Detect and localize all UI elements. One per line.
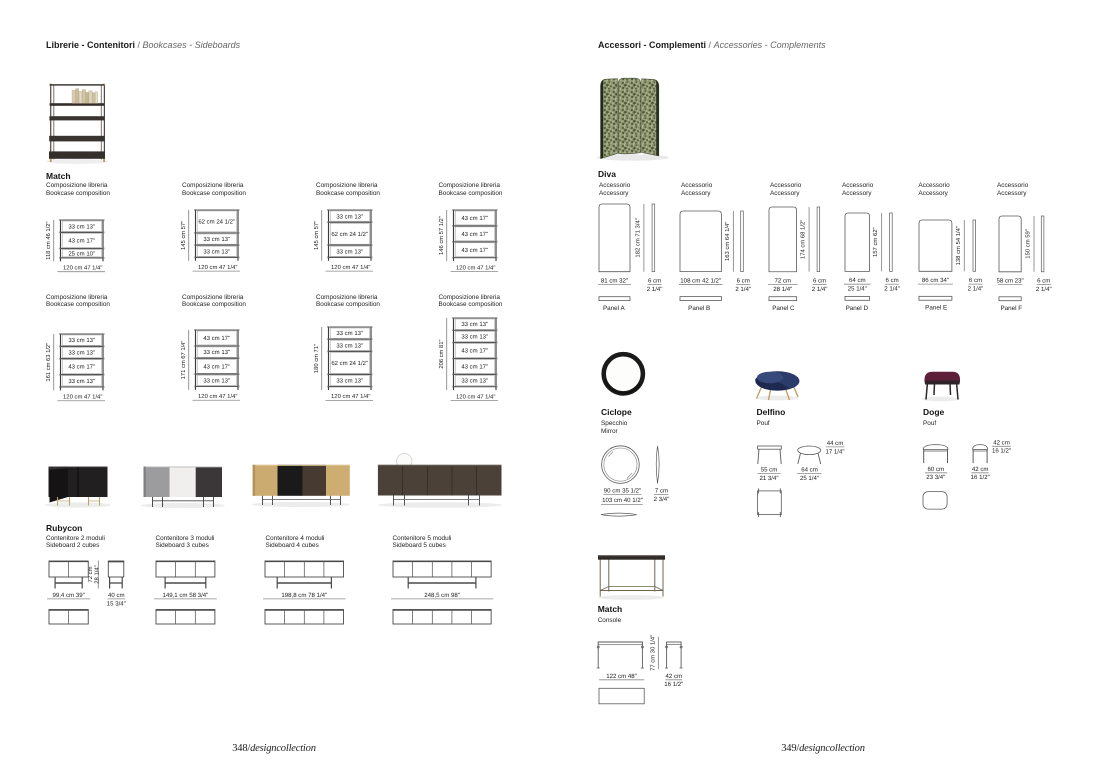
svg-text:182 cm 71 3/4": 182 cm 71 3/4" bbox=[634, 218, 641, 257]
svg-text:2 1/4": 2 1/4" bbox=[967, 286, 983, 293]
svg-text:43 cm 17": 43 cm 17" bbox=[461, 247, 488, 254]
svg-text:90 cm 35 1/2": 90 cm 35 1/2" bbox=[604, 487, 641, 494]
svg-text:33 cm 13": 33 cm 13" bbox=[68, 337, 95, 344]
svg-text:6 cm: 6 cm bbox=[1037, 277, 1050, 284]
svg-text:171 cm 67 1/4": 171 cm 67 1/4" bbox=[179, 341, 186, 380]
svg-text:7 cm: 7 cm bbox=[655, 487, 668, 494]
svg-text:86 cm 34": 86 cm 34" bbox=[921, 277, 948, 284]
svg-text:6 cm: 6 cm bbox=[648, 277, 661, 284]
svg-text:Panel A: Panel A bbox=[603, 305, 626, 312]
svg-text:33 cm 13": 33 cm 13" bbox=[203, 378, 230, 385]
svg-text:16 1/2": 16 1/2" bbox=[664, 681, 683, 688]
svg-text:33 cm 13": 33 cm 13" bbox=[336, 214, 363, 221]
svg-text:120 cm 47 1/4": 120 cm 47 1/4" bbox=[331, 393, 370, 400]
svg-text:33 cm 13": 33 cm 13" bbox=[68, 349, 95, 356]
svg-text:43 cm 17": 43 cm 17" bbox=[461, 347, 488, 354]
svg-text:120 cm 47 1/4": 120 cm 47 1/4" bbox=[456, 393, 495, 400]
svg-text:6 cm: 6 cm bbox=[813, 277, 826, 284]
svg-text:33 cm 13": 33 cm 13" bbox=[461, 321, 488, 328]
svg-text:103 cm 40 1/2": 103 cm 40 1/2" bbox=[602, 497, 643, 504]
svg-text:25 1/4": 25 1/4" bbox=[848, 286, 867, 293]
svg-text:33 cm 13": 33 cm 13" bbox=[203, 349, 230, 356]
svg-text:62 cm 24 1/2": 62 cm 24 1/2" bbox=[331, 231, 368, 238]
svg-text:Panel B: Panel B bbox=[688, 305, 710, 312]
svg-text:33 cm 13": 33 cm 13" bbox=[203, 249, 230, 256]
svg-text:43 cm 17": 43 cm 17" bbox=[203, 363, 230, 370]
svg-text:146 cm 57 1/2": 146 cm 57 1/2" bbox=[437, 216, 444, 255]
svg-text:28 1/4": 28 1/4" bbox=[773, 286, 792, 293]
svg-text:42 cm: 42 cm bbox=[665, 673, 682, 680]
svg-text:120 cm 47 1/4": 120 cm 47 1/4" bbox=[331, 264, 370, 271]
svg-text:145 cm 57": 145 cm 57" bbox=[180, 221, 186, 250]
svg-text:6 cm: 6 cm bbox=[737, 277, 750, 284]
svg-text:Panel F: Panel F bbox=[1001, 305, 1023, 312]
svg-text:44 cm: 44 cm bbox=[827, 440, 844, 447]
svg-text:33 cm 13": 33 cm 13" bbox=[336, 378, 363, 385]
svg-text:6 cm: 6 cm bbox=[886, 277, 899, 284]
svg-text:25 1/4": 25 1/4" bbox=[800, 475, 819, 482]
svg-text:60 cm: 60 cm bbox=[927, 466, 944, 473]
svg-text:161 cm 63 1/2": 161 cm 63 1/2" bbox=[44, 342, 51, 381]
svg-text:16 1/2": 16 1/2" bbox=[971, 474, 990, 481]
svg-text:33 cm 13": 33 cm 13" bbox=[336, 330, 363, 337]
svg-text:43 cm 17": 43 cm 17" bbox=[68, 237, 95, 244]
svg-text:62 cm 24 1/2": 62 cm 24 1/2" bbox=[331, 360, 368, 367]
svg-text:42 cm: 42 cm bbox=[972, 466, 989, 473]
svg-text:198,8 cm 78 1/4": 198,8 cm 78 1/4" bbox=[281, 592, 327, 599]
svg-text:145 cm 57": 145 cm 57" bbox=[314, 221, 320, 250]
svg-text:42 cm: 42 cm bbox=[993, 439, 1010, 446]
svg-text:62 cm 24 1/2": 62 cm 24 1/2" bbox=[198, 219, 235, 226]
svg-text:120 cm 47 1/4": 120 cm 47 1/4" bbox=[198, 393, 237, 400]
svg-text:120 cm 47 1/4": 120 cm 47 1/4" bbox=[63, 264, 102, 271]
svg-text:138 cm 54 1/4": 138 cm 54 1/4" bbox=[954, 226, 961, 265]
svg-text:2 3/4": 2 3/4" bbox=[654, 496, 670, 503]
svg-text:122 cm 48": 122 cm 48" bbox=[606, 673, 637, 680]
svg-text:33 cm 13": 33 cm 13" bbox=[203, 236, 230, 243]
svg-text:64 cm: 64 cm bbox=[801, 467, 818, 474]
svg-text:23 3/4": 23 3/4" bbox=[926, 474, 945, 481]
svg-text:6 cm: 6 cm bbox=[968, 277, 981, 284]
svg-text:72 cm28 1/4": 72 cm28 1/4" bbox=[88, 565, 101, 583]
svg-text:40 cm: 40 cm bbox=[108, 592, 125, 599]
svg-text:2 1/4": 2 1/4" bbox=[735, 286, 751, 293]
svg-text:108 cm 42 1/2": 108 cm 42 1/2" bbox=[680, 277, 721, 284]
svg-text:55 cm: 55 cm bbox=[761, 467, 778, 474]
svg-text:248,5 cm 98": 248,5 cm 98" bbox=[424, 592, 460, 599]
svg-text:77 cm 30 1/4": 77 cm 30 1/4" bbox=[649, 635, 656, 671]
svg-text:120 cm 47 1/4": 120 cm 47 1/4" bbox=[198, 264, 237, 271]
svg-text:43 cm 17": 43 cm 17" bbox=[461, 215, 488, 222]
svg-text:33 cm 13": 33 cm 13" bbox=[68, 223, 95, 230]
svg-text:2 1/4": 2 1/4" bbox=[884, 286, 900, 293]
svg-text:174 cm 68 1/2": 174 cm 68 1/2" bbox=[800, 220, 807, 259]
svg-text:Panel D: Panel D bbox=[846, 305, 869, 312]
svg-text:33 cm 13": 33 cm 13" bbox=[336, 342, 363, 349]
svg-text:149,1 cm 58 3/4": 149,1 cm 58 3/4" bbox=[162, 592, 208, 599]
svg-text:15 3/4": 15 3/4" bbox=[107, 600, 126, 607]
svg-text:43 cm 17": 43 cm 17" bbox=[68, 363, 95, 370]
svg-text:Panel C: Panel C bbox=[772, 305, 795, 312]
svg-text:33 cm 13": 33 cm 13" bbox=[68, 377, 95, 384]
svg-text:2 1/4": 2 1/4" bbox=[646, 286, 662, 293]
svg-text:206 cm 81": 206 cm 81" bbox=[437, 339, 444, 368]
svg-text:21 3/4": 21 3/4" bbox=[759, 475, 778, 482]
svg-text:25 cm 10": 25 cm 10" bbox=[68, 250, 95, 257]
svg-text:72 cm: 72 cm bbox=[774, 277, 791, 284]
svg-text:2 1/4": 2 1/4" bbox=[1036, 286, 1052, 293]
svg-text:43 cm 17": 43 cm 17" bbox=[203, 335, 230, 342]
svg-text:43 cm 17": 43 cm 17" bbox=[461, 231, 488, 238]
svg-text:64 cm: 64 cm bbox=[849, 277, 866, 284]
svg-text:99,4 cm 39": 99,4 cm 39" bbox=[52, 592, 84, 599]
svg-text:43 cm 17": 43 cm 17" bbox=[461, 363, 488, 370]
svg-text:157 cm 62": 157 cm 62" bbox=[872, 228, 879, 258]
svg-text:33 cm 13": 33 cm 13" bbox=[461, 378, 488, 385]
svg-text:163 cm 64 1/4": 163 cm 64 1/4" bbox=[724, 222, 731, 261]
svg-text:16 1/2": 16 1/2" bbox=[992, 448, 1011, 455]
svg-text:58 cm 23": 58 cm 23" bbox=[997, 277, 1024, 284]
svg-text:33 cm 13": 33 cm 13" bbox=[336, 249, 363, 256]
svg-text:118 cm 46 1/2": 118 cm 46 1/2" bbox=[44, 221, 51, 259]
svg-text:Panel E: Panel E bbox=[925, 305, 947, 312]
svg-text:120 cm 47 1/4": 120 cm 47 1/4" bbox=[63, 393, 102, 400]
svg-text:180 cm 71": 180 cm 71" bbox=[313, 344, 320, 373]
svg-text:17 1/4": 17 1/4" bbox=[825, 448, 844, 455]
svg-text:2 1/4": 2 1/4" bbox=[812, 286, 828, 293]
svg-text:120 cm 47 1/4": 120 cm 47 1/4" bbox=[456, 264, 495, 271]
svg-text:81 cm 32": 81 cm 32" bbox=[601, 277, 628, 284]
svg-text:33 cm 13": 33 cm 13" bbox=[461, 333, 488, 340]
svg-text:150 cm 59": 150 cm 59" bbox=[1025, 229, 1032, 259]
